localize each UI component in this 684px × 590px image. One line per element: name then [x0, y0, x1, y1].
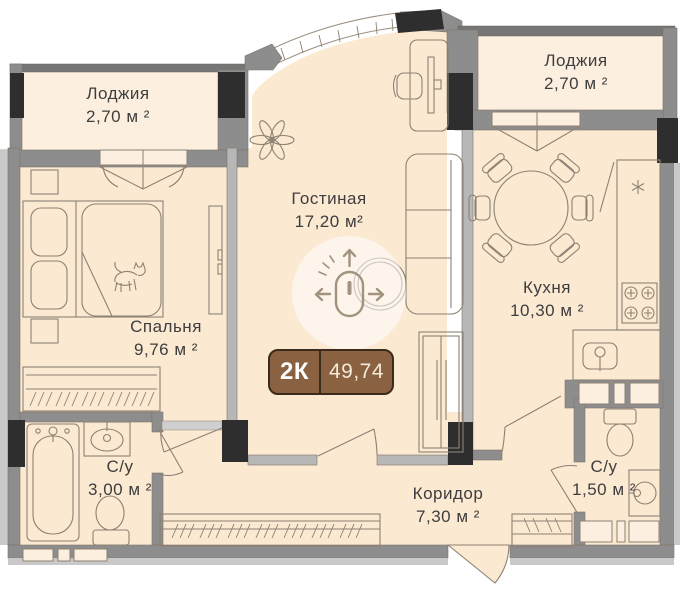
kitchen-floor [473, 118, 660, 418]
room-label-loggia-left: Лоджия 2,70 м ² [86, 82, 150, 128]
plan-total-area: 49,74 [319, 351, 392, 393]
room-area: 2,70 м ² [86, 105, 150, 128]
plan-badge[interactable]: 2К 49,74 [268, 349, 394, 395]
room-area: 9,76 м ² [130, 338, 202, 361]
room-label-bath-main: С/у 3,00 м ² [88, 455, 152, 501]
room-area: 10,30 м ² [510, 299, 584, 322]
room-name: Спальня [130, 315, 202, 338]
room-area: 1,50 м ² [572, 478, 636, 501]
room-label-corridor: Коридор 7,30 м ² [413, 482, 484, 528]
room-name: Коридор [413, 482, 484, 505]
room-name: С/у [572, 455, 636, 478]
room-area: 7,30 м ² [413, 505, 484, 528]
room-area: 17,20 м² [291, 210, 366, 233]
plan-type-label: 2К [270, 351, 319, 393]
floor-plan[interactable]: Лоджия 2,70 м ² Лоджия 2,70 м ² Гостиная… [0, 0, 684, 590]
room-label-bath-guest: С/у 1,50 м ² [572, 455, 636, 501]
room-name: Гостиная [291, 187, 366, 210]
room-label-bedroom: Спальня 9,76 м ² [130, 315, 202, 361]
room-area: 3,00 м ² [88, 478, 152, 501]
room-label-living: Гостиная 17,20 м² [291, 187, 366, 233]
room-name: Кухня [510, 276, 584, 299]
room-name: Лоджия [86, 82, 150, 105]
room-name: С/у [88, 455, 152, 478]
entry-door [448, 545, 509, 583]
room-label-kitchen: Кухня 10,30 м ² [510, 276, 584, 322]
room-name: Лоджия [544, 49, 608, 72]
room-area: 2,70 м ² [544, 72, 608, 95]
room-label-loggia-right: Лоджия 2,70 м ² [544, 49, 608, 95]
